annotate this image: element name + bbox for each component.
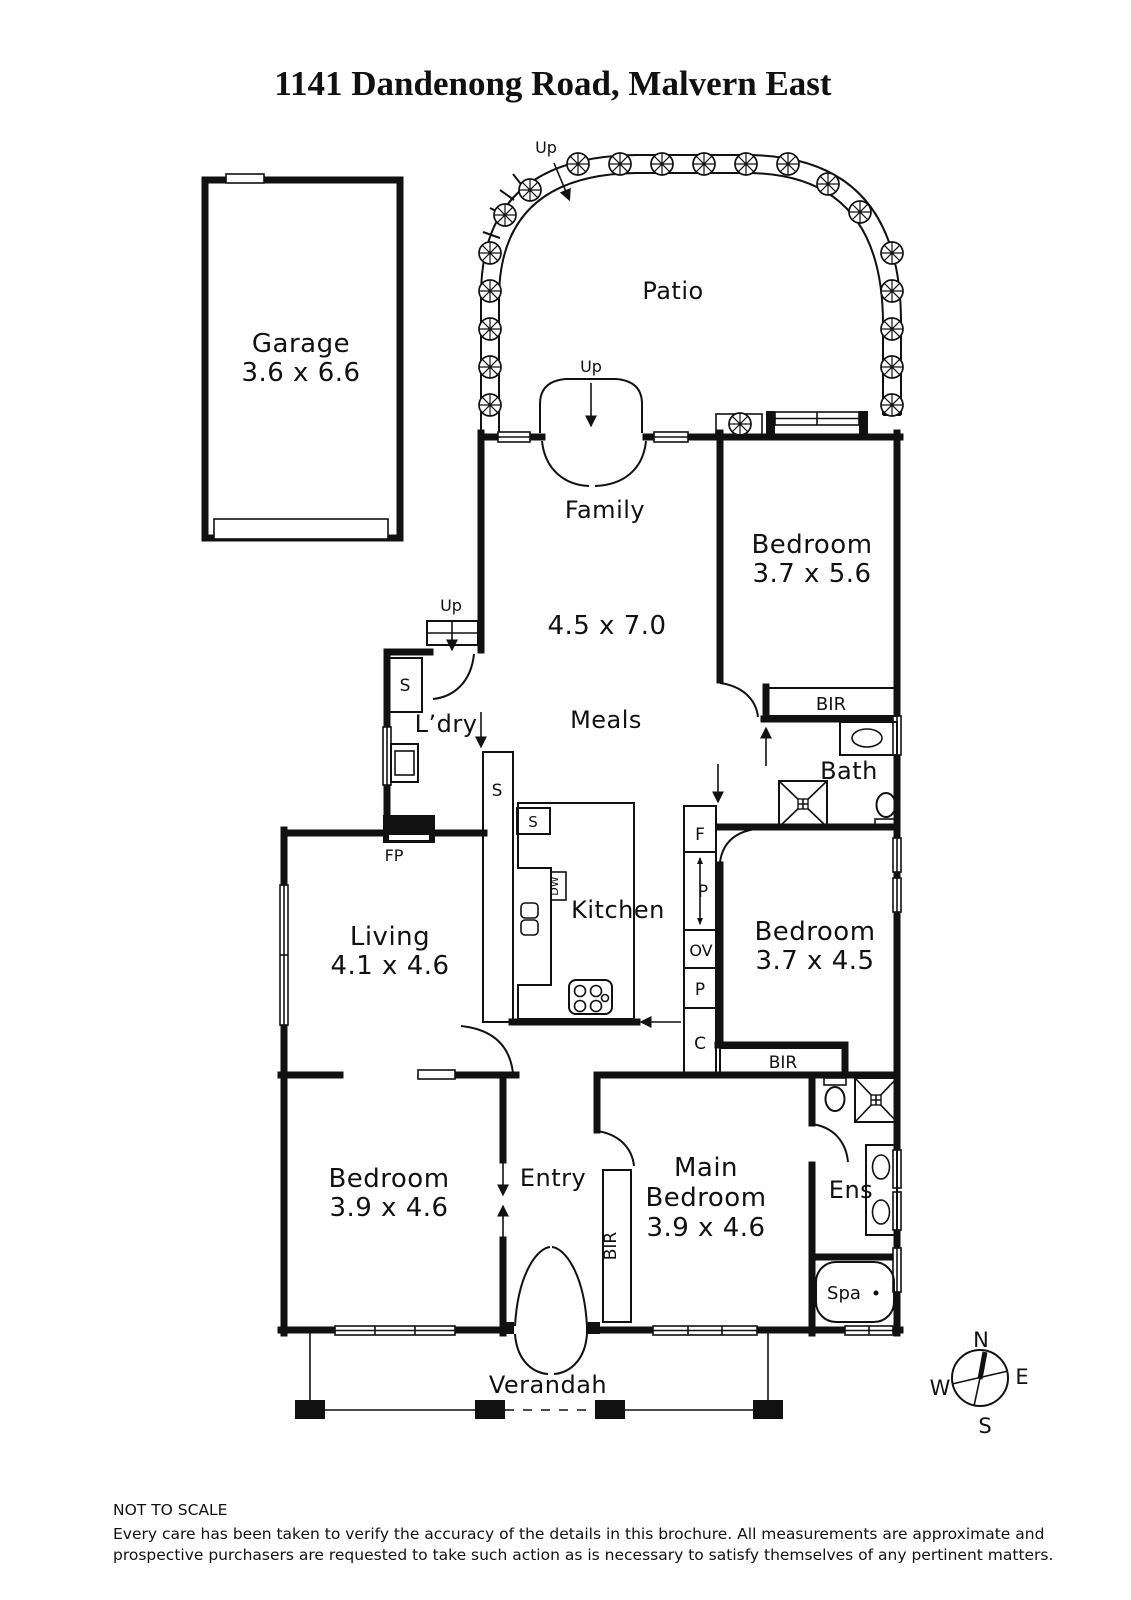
laundry-steps: Up [427, 596, 478, 649]
meals-storage-label: S [492, 781, 503, 801]
verandah-post [753, 1400, 783, 1419]
bedroom2-robe-label: BIR [769, 1053, 798, 1073]
main-bedroom-label-1: Main [674, 1153, 738, 1183]
verandah-label: Verandah [489, 1371, 607, 1399]
living-label: Living [350, 922, 430, 952]
oven-label: OV [689, 941, 712, 960]
compass-west: W [930, 1376, 951, 1400]
family-door-right [595, 441, 646, 486]
family-dims: 4.5 x 7.0 [547, 611, 666, 641]
living-window [280, 885, 288, 1025]
laundry-up-label: Up [440, 596, 462, 615]
kitchen-label: Kitchen [571, 896, 665, 924]
family-up-label: Up [580, 357, 602, 376]
bedroom2-window-a [893, 838, 901, 872]
laundry-window [383, 727, 391, 785]
laundry-door [433, 654, 474, 699]
dishwasher: DW [548, 872, 566, 900]
verandah: Verandah [295, 1333, 783, 1419]
disclaimer-line1: Every care has been taken to verify the … [113, 1525, 1044, 1543]
bedroom3-window [335, 1326, 455, 1335]
compass-north: N [973, 1328, 989, 1352]
bedroom2-robe: BIR [720, 1048, 845, 1073]
bathroom: BIR Bath [766, 688, 897, 827]
living-door [461, 1026, 513, 1073]
shower-icon [779, 781, 827, 827]
family-label: Family [565, 496, 645, 524]
shrub-icon [729, 413, 751, 435]
front-door-jamb-right [586, 1322, 600, 1334]
bedroom3-door-leaf [418, 1070, 455, 1079]
kitchen: S S DW Kitchen [483, 752, 681, 1022]
meals-label: Meals [570, 706, 642, 734]
garage-dims: 3.6 x 6.6 [241, 358, 360, 388]
family-porch: Up [540, 357, 642, 433]
main-bedroom-label-2: Bedroom [645, 1183, 766, 1213]
footer: NOT TO SCALE Every care has been taken t… [113, 1501, 1053, 1564]
laundry-label: L’dry [415, 710, 478, 738]
pantry-lower-label: P [695, 980, 705, 1000]
bath-vanity-icon [840, 722, 897, 755]
bedroom3-dims: 3.9 x 4.6 [329, 1193, 448, 1223]
main-bedroom-door [597, 1131, 634, 1166]
ensuite-label: Ens [829, 1176, 873, 1204]
dishwasher-label: DW [548, 876, 561, 895]
laundry-storage-label: S [400, 676, 411, 696]
cupboard-label: C [694, 1034, 706, 1054]
fireplace: FP [383, 815, 435, 865]
ensuite-shower-icon [855, 1078, 897, 1122]
garage-window [226, 174, 264, 183]
main-bedroom-dims: 3.9 x 4.6 [646, 1213, 765, 1243]
patio-up-label: Up [535, 138, 557, 157]
front-door-jamb-left [500, 1322, 514, 1334]
main-bedroom-window [653, 1326, 757, 1335]
garden-bed-inner [499, 173, 883, 437]
family-window-right [654, 432, 688, 442]
bedroom1-door [720, 683, 758, 717]
compass-east: E [1015, 1365, 1028, 1389]
patio-up-arrow-icon [554, 163, 569, 199]
fridge-label: F [695, 825, 705, 845]
front-door-inner [515, 1247, 587, 1326]
bedroom1-robe-label: BIR [816, 694, 846, 715]
floor-plan-svg: 1141 Dandenong Road, Malvern East Garage… [0, 0, 1131, 1600]
family-door-left [542, 441, 589, 486]
patio-label: Patio [642, 277, 703, 305]
scale-note: NOT TO SCALE [113, 1501, 227, 1519]
bedroom2-window-b [893, 878, 901, 912]
garage-door [214, 519, 388, 539]
verandah-post [295, 1400, 325, 1419]
bedroom1-label: Bedroom [751, 530, 872, 560]
floor-plan-page: 1141 Dandenong Road, Malvern East Garage… [0, 0, 1131, 1600]
family-window-left [498, 432, 530, 442]
bath-label: Bath [820, 757, 878, 785]
garage-label: Garage [252, 329, 350, 359]
spa-label: Spa [827, 1283, 861, 1304]
entry-label: Entry [520, 1164, 586, 1192]
main-robe-label: BIR [601, 1232, 621, 1261]
bedroom2-label: Bedroom [754, 917, 875, 947]
ensuite-door [812, 1124, 848, 1162]
main-bedroom-robe: BIR [601, 1170, 631, 1322]
bedroom2-door [720, 829, 755, 862]
living-dims: 4.1 x 4.6 [330, 951, 449, 981]
verandah-post [595, 1400, 625, 1419]
page-title: 1141 Dandenong Road, Malvern East [274, 64, 831, 103]
fireplace-label: FP [385, 846, 404, 865]
disclaimer-line2: prospective purchasers are requested to … [113, 1546, 1053, 1564]
garage: Garage 3.6 x 6.6 [205, 174, 400, 539]
verandah-post [475, 1400, 505, 1419]
bedroom2-dims: 3.7 x 4.5 [755, 946, 874, 976]
kitchen-storage-label: S [528, 813, 538, 831]
bedroom1-dims: 3.7 x 5.6 [752, 559, 871, 589]
sink-icon [521, 903, 538, 935]
spa-bath-icon: Spa [816, 1262, 894, 1322]
pantry-upper-label: P [698, 882, 708, 902]
cooktop-icon [569, 980, 612, 1014]
front-door-outer [515, 1334, 587, 1374]
pantry-column: F P OV P C [684, 806, 716, 1074]
ensuite-toilet-icon [824, 1078, 846, 1111]
bedroom1-bay-window [766, 411, 868, 437]
bedroom3-label: Bedroom [328, 1164, 449, 1194]
spa-window-south [845, 1326, 893, 1335]
ensuite: Ens Spa [816, 1078, 897, 1322]
compass: N E S W [930, 1328, 1029, 1438]
compass-south: S [978, 1414, 991, 1438]
compass-needle-icon [980, 1352, 985, 1379]
washing-machine-icon [391, 744, 418, 782]
